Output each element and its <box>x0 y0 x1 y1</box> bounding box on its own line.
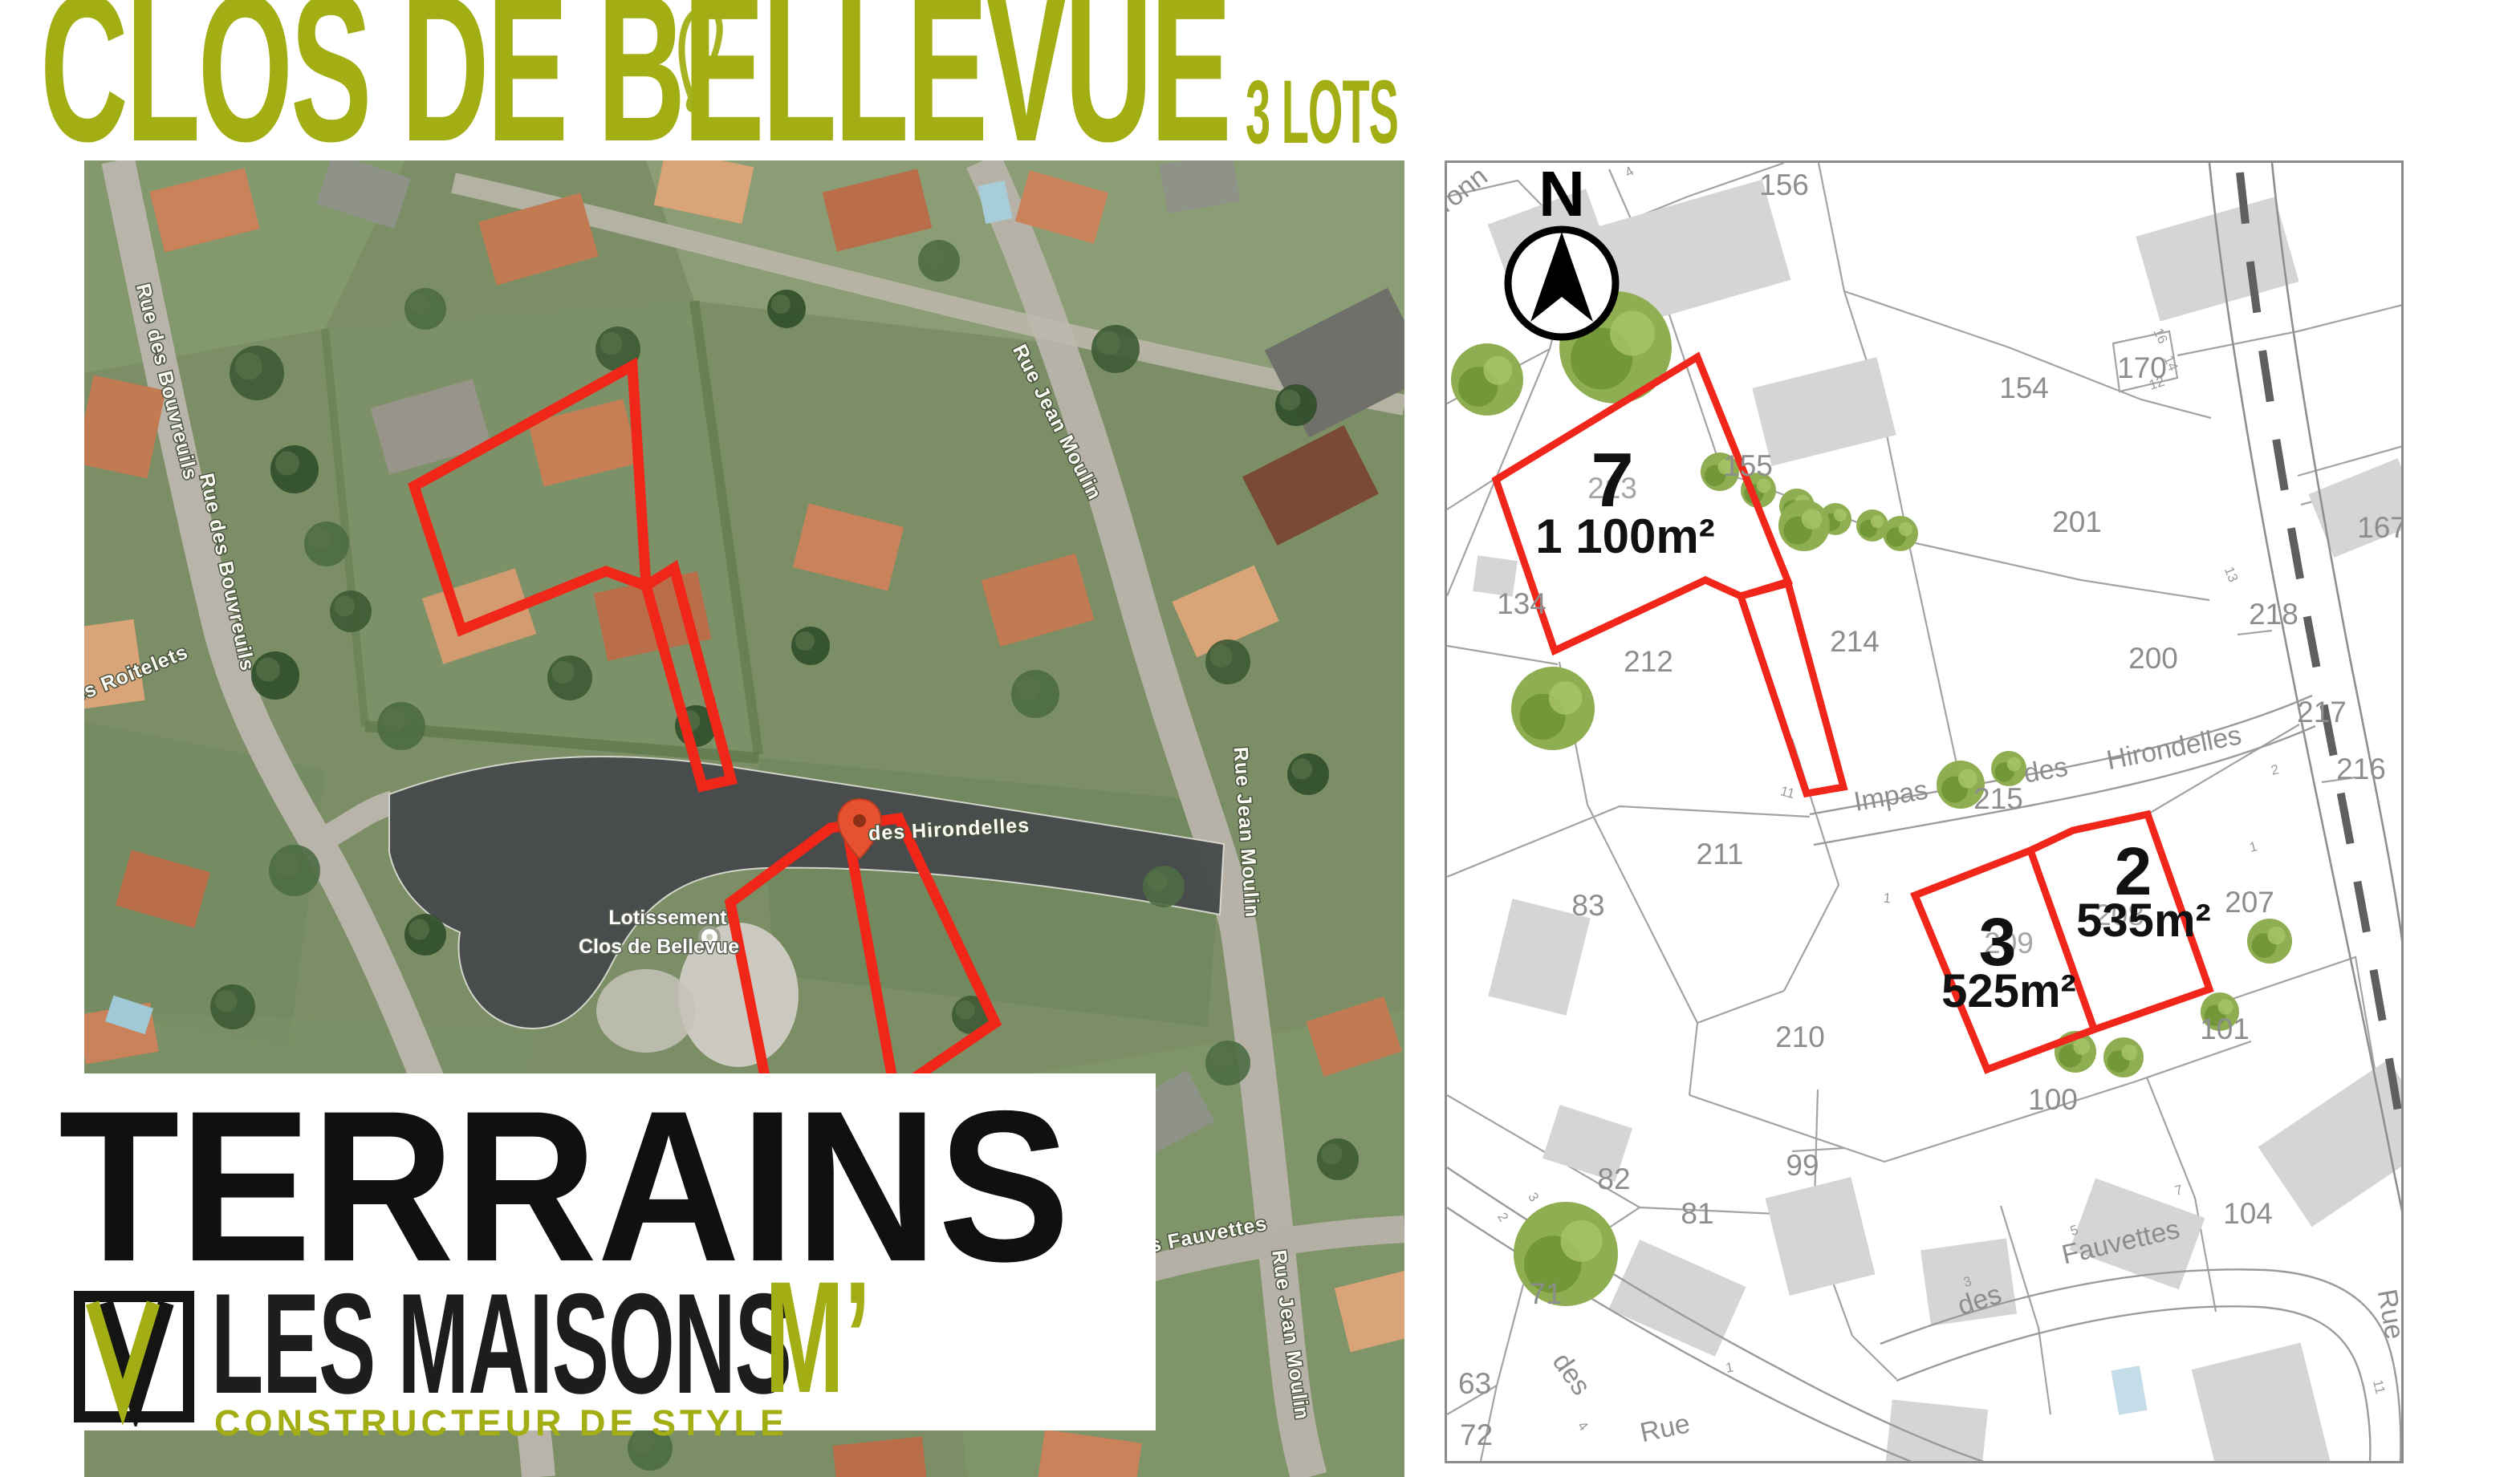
brand-tagline: CONSTRUCTEUR DE STYLE <box>214 1402 788 1444</box>
tree-highlight <box>600 332 623 355</box>
parcel-label: 81 <box>1681 1197 1713 1230</box>
tree-highlight <box>215 990 238 1012</box>
title-text: CLOS DE BELLEVUE <box>40 0 1230 173</box>
parcel-label: 212 <box>1624 645 1673 678</box>
brand-mark: M’ <box>765 1258 941 1417</box>
tree-icon <box>2247 919 2292 964</box>
tree-highlight <box>1279 390 1300 411</box>
headline: TERRAINS <box>59 1078 1158 1293</box>
parcel-label: 156 <box>1759 168 1809 201</box>
parcel-label: 82 <box>1597 1163 1630 1195</box>
tree-highlight <box>275 452 299 476</box>
parcel-label: 215 <box>1973 782 2023 815</box>
parcel-label: 99 <box>1786 1149 1819 1182</box>
brand-row: LES MAISONS M’ CONSTRUCTEUR DE STYLE <box>28 1280 1156 1433</box>
tree-highlight <box>274 851 299 877</box>
tree-highlight <box>552 661 575 684</box>
tree-highlight <box>1210 1046 1233 1069</box>
tree-highlight <box>334 596 355 617</box>
parcel-label: 72 <box>1460 1418 1493 1451</box>
tree-highlight <box>382 708 406 732</box>
place-label-line1: Lotissement <box>608 907 727 929</box>
parcel-label: 210 <box>1775 1021 1825 1053</box>
lot-area: 535m² <box>2076 895 2211 947</box>
tree-highlight <box>1291 759 1312 780</box>
tree-highlight <box>1016 676 1040 700</box>
tree-highlight <box>1321 1144 1342 1165</box>
parcel-label: 71 <box>1529 1277 1562 1310</box>
tree-icon <box>1511 667 1595 750</box>
tree-icon <box>2103 1037 2144 1077</box>
tree-highlight <box>408 294 429 314</box>
parcel-label: 101 <box>2200 1012 2250 1045</box>
tree-highlight <box>1096 331 1120 355</box>
parcel-label: 207 <box>2225 886 2274 919</box>
parcel-label: 83 <box>1571 889 1604 922</box>
brand-name: LES MAISONS <box>211 1272 1177 1415</box>
tree-icon <box>1778 500 1830 551</box>
building-footprint <box>1885 1399 1988 1461</box>
parcel-label: 100 <box>2028 1083 2078 1116</box>
logo-v-icon <box>73 1290 195 1426</box>
cadastral-map: N 213209208 1561541701552011671342142182… <box>1447 163 2401 1461</box>
tree-highlight <box>795 631 815 651</box>
tree-icon <box>1991 751 2026 786</box>
tree-highlight <box>309 527 331 550</box>
lot-area: 1 100m² <box>1535 509 1714 563</box>
lot-area: 525m² <box>1941 965 2076 1017</box>
cadastral-map-panel: N 213209208 1561541701552011671342142182… <box>1445 160 2404 1463</box>
tree-highlight <box>956 1000 975 1020</box>
parcel-label: 167 <box>2357 511 2401 544</box>
lots-count-badge: 3 LOTS <box>1246 67 1551 157</box>
place-label-line2: Clos de Bellevue <box>579 935 739 958</box>
tree-highlight <box>1210 645 1233 667</box>
title-swash-decoration <box>642 0 778 120</box>
flyer-page: Lotissement Clos de Bellevue Rue des Bou… <box>0 0 2520 1477</box>
house-number: 1 <box>1883 891 1892 907</box>
parcel-label: 211 <box>1697 838 1744 870</box>
parcel-label: 63 <box>1458 1367 1491 1400</box>
parcel-label: 200 <box>2128 642 2178 675</box>
tree-highlight <box>408 919 429 940</box>
parcel-label: 104 <box>2223 1197 2273 1230</box>
parcel-label: 217 <box>2297 696 2347 728</box>
tree-highlight <box>771 294 791 314</box>
tree-highlight <box>256 658 280 682</box>
page-title: CLOS DE BELLEVUE <box>40 0 2091 173</box>
parcel-label: 214 <box>1830 625 1880 658</box>
tree-icon <box>1451 343 1523 416</box>
brand-overlay: TERRAINS LES MAISONS M’ CONSTRUCTEUR DE … <box>28 1073 1156 1430</box>
parcel-label: 155 <box>1723 449 1773 482</box>
tree-highlight <box>235 353 262 380</box>
tree-icon <box>1883 516 1918 551</box>
parcel-label: 216 <box>2336 753 2386 785</box>
parcel-label: 154 <box>1999 371 2049 404</box>
parcel-label: 201 <box>2052 505 2102 538</box>
tree-highlight <box>922 245 943 266</box>
tree-highlight <box>1147 871 1168 892</box>
parcel-label: 218 <box>2249 598 2298 631</box>
parcel-label: 134 <box>1497 587 1547 620</box>
